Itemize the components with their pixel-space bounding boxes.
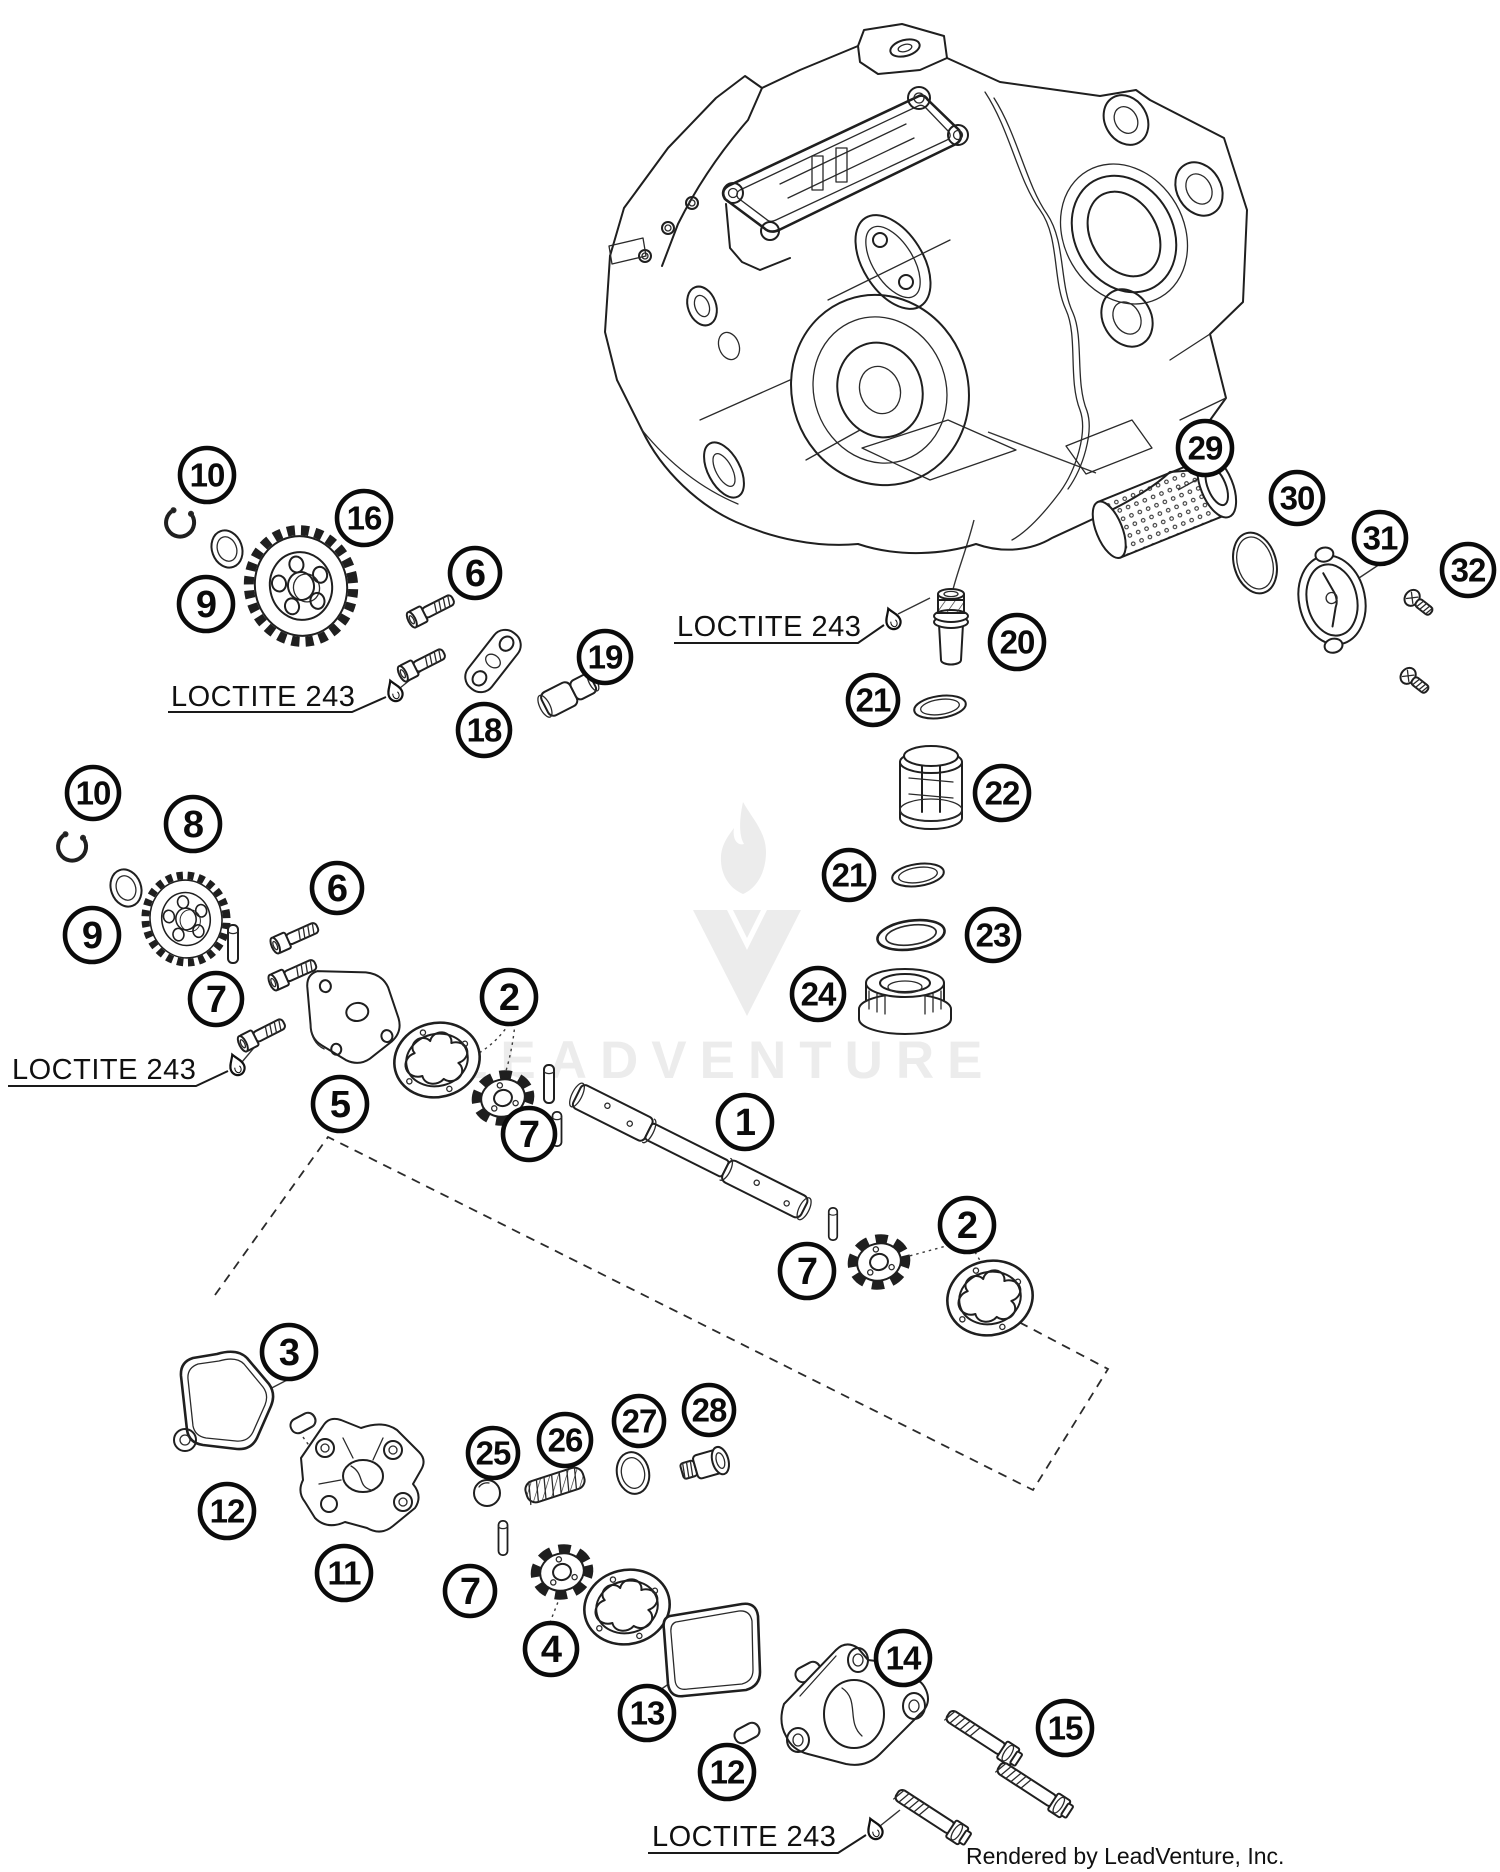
loctite-drop-icon (864, 1816, 885, 1841)
callout-3[interactable]: 3 (262, 1325, 316, 1379)
part-rotor-inner-4 (530, 1543, 594, 1601)
svg-text:25: 25 (476, 1435, 511, 1472)
part-plug-28 (678, 1445, 732, 1485)
callout-4[interactable]: 4 (525, 1623, 577, 1675)
svg-text:10: 10 (190, 457, 225, 494)
callout-21[interactable]: 21 (848, 675, 898, 725)
part-oring-30 (1226, 527, 1283, 598)
callout-16[interactable]: 16 (337, 491, 391, 545)
part-bolt-7-loctite (236, 1015, 288, 1053)
svg-text:16: 16 (347, 500, 382, 537)
part-gasket-13 (664, 1604, 760, 1697)
svg-text:28: 28 (692, 1392, 727, 1429)
svg-text:7: 7 (797, 1251, 817, 1293)
callout-11[interactable]: 11 (317, 1546, 371, 1600)
part-oring-21b (891, 860, 946, 889)
callout-6[interactable]: 6 (450, 548, 500, 598)
loctite-annotation: LOCTITE 243 (648, 1816, 885, 1853)
svg-text:20: 20 (1000, 624, 1035, 661)
loctite-annotation: LOCTITE 243 (674, 606, 903, 643)
loctite-label: LOCTITE 243 (12, 1054, 196, 1086)
loctite-annotation: LOCTITE 243 (168, 678, 405, 713)
part-spring-26 (523, 1465, 587, 1504)
callout-25[interactable]: 25 (468, 1428, 518, 1478)
svg-text:1: 1 (735, 1102, 756, 1144)
svg-text:2: 2 (957, 1205, 977, 1247)
svg-text:3: 3 (279, 1332, 299, 1374)
callout-21[interactable]: 21 (824, 850, 874, 900)
part-dowel-12b-2 (732, 1720, 762, 1745)
svg-text:31: 31 (1363, 520, 1398, 557)
loctite-label: LOCTITE 243 (171, 681, 355, 713)
parts-diagram-canvas: LEADVENTURE (0, 0, 1500, 1872)
part-rotor-outer-2a (386, 1014, 487, 1107)
svg-text:9: 9 (82, 915, 102, 957)
part-circlip-10a (162, 503, 198, 540)
callout-6[interactable]: 6 (312, 863, 362, 913)
svg-text:4: 4 (541, 1629, 562, 1671)
callout-15[interactable]: 15 (1038, 1701, 1092, 1755)
callout-12[interactable]: 12 (200, 1484, 254, 1538)
callout-5[interactable]: 5 (313, 1077, 367, 1131)
loctite-annotation: LOCTITE 243 (8, 1052, 247, 1086)
part-bolt-6b-1 (269, 919, 321, 955)
part-bolt-15a (943, 1706, 1024, 1769)
svg-text:14: 14 (886, 1640, 922, 1677)
callout-30[interactable]: 30 (1271, 472, 1323, 524)
part-pin-7d (499, 1521, 508, 1555)
callout-9[interactable]: 9 (65, 908, 119, 962)
part-plate-18 (460, 624, 527, 698)
callout-7[interactable]: 7 (190, 973, 242, 1025)
callout-10[interactable]: 10 (180, 448, 234, 502)
part-pin-7c (829, 1208, 838, 1240)
callout-27[interactable]: 27 (614, 1396, 664, 1446)
callout-19[interactable]: 19 (579, 631, 631, 683)
callout-13[interactable]: 13 (620, 1686, 674, 1740)
callout-32[interactable]: 32 (1442, 544, 1494, 596)
part-nozzle-20 (934, 589, 968, 665)
svg-text:32: 32 (1451, 552, 1486, 589)
svg-text:8: 8 (183, 804, 203, 846)
svg-text:13: 13 (630, 1695, 665, 1732)
part-pin-7b (544, 1065, 554, 1103)
callout-2[interactable]: 2 (482, 970, 536, 1024)
part-oring-21a (913, 692, 968, 721)
part-bolt-6a (405, 591, 457, 629)
callout-8[interactable]: 8 (166, 797, 220, 851)
render-credit: Rendered by LeadVenture, Inc. (966, 1843, 1284, 1869)
svg-text:7: 7 (460, 1571, 480, 1613)
svg-text:7: 7 (206, 979, 226, 1021)
svg-text:6: 6 (327, 868, 347, 910)
part-rotor-inner-2b (847, 1233, 911, 1291)
callout-28[interactable]: 28 (684, 1385, 734, 1435)
callout-7[interactable]: 7 (503, 1108, 555, 1160)
callout-2[interactable]: 2 (940, 1198, 994, 1252)
loctite-drop-icon (882, 606, 903, 631)
callout-14[interactable]: 14 (876, 1631, 930, 1685)
callout-20[interactable]: 20 (990, 615, 1044, 669)
svg-text:12: 12 (210, 1493, 245, 1530)
part-oring-27 (613, 1449, 653, 1497)
callout-7[interactable]: 7 (780, 1244, 834, 1298)
svg-text:23: 23 (976, 917, 1011, 954)
svg-text:11: 11 (328, 1555, 362, 1592)
svg-text:7: 7 (519, 1114, 539, 1156)
part-screw-32a (1401, 587, 1436, 619)
svg-text:10: 10 (76, 775, 111, 812)
part-shim-9b (105, 865, 146, 911)
svg-text:18: 18 (467, 712, 502, 749)
part-shaft-1 (567, 1081, 815, 1222)
callout-12[interactable]: 12 (700, 1745, 754, 1799)
part-oring-23 (876, 916, 947, 954)
callout-10[interactable]: 10 (67, 767, 119, 819)
callout-7[interactable]: 7 (445, 1566, 495, 1616)
callout-23[interactable]: 23 (967, 909, 1019, 961)
leadventure-flame-icon (721, 802, 766, 894)
leadventure-v-icon (693, 910, 801, 1016)
loctite-drop-icon (384, 678, 405, 703)
callout-31[interactable]: 31 (1354, 512, 1406, 564)
callout-1[interactable]: 1 (718, 1095, 772, 1149)
svg-text:12: 12 (710, 1754, 745, 1791)
svg-text:24: 24 (801, 976, 837, 1013)
loctite-annotations: LOCTITE 243LOCTITE 243LOCTITE 243LOCTITE… (8, 606, 903, 1853)
loctite-label: LOCTITE 243 (652, 1821, 836, 1853)
svg-text:22: 22 (985, 775, 1020, 812)
callout-22[interactable]: 22 (975, 766, 1029, 820)
part-pin-7a (228, 925, 238, 963)
callout-29[interactable]: 29 (1178, 421, 1232, 475)
part-pump-housing-11 (300, 1419, 423, 1532)
loctite-label: LOCTITE 243 (677, 611, 861, 643)
part-screw-32b (1397, 665, 1432, 697)
part-ball-25 (474, 1480, 500, 1506)
svg-text:30: 30 (1280, 480, 1315, 517)
part-strainer-22 (900, 746, 962, 829)
part-dowel-12a (288, 1410, 318, 1435)
svg-text:6: 6 (465, 553, 485, 595)
svg-text:26: 26 (548, 1422, 583, 1459)
svg-text:27: 27 (622, 1403, 657, 1440)
watermark-text: LEADVENTURE (455, 1031, 996, 1090)
part-circlip-10b (54, 827, 90, 864)
svg-text:21: 21 (856, 682, 891, 719)
part-sprocket-8 (138, 869, 233, 969)
svg-text:15: 15 (1048, 1710, 1083, 1747)
svg-text:5: 5 (330, 1084, 351, 1126)
svg-text:29: 29 (1188, 430, 1223, 467)
svg-text:2: 2 (499, 977, 519, 1019)
svg-text:21: 21 (832, 857, 867, 894)
watermark: LEADVENTURE (455, 802, 996, 1090)
part-bolt-15-loctite (892, 1785, 973, 1848)
part-gasket-3 (174, 1352, 273, 1451)
part-shim-9a (206, 526, 247, 572)
callout-9[interactable]: 9 (179, 577, 233, 631)
part-rotor-outer-2b (939, 1252, 1040, 1345)
part-bolt-6a-loctite (396, 645, 448, 683)
loctite-drop-icon (226, 1052, 247, 1077)
callout-24[interactable]: 24 (792, 968, 844, 1020)
part-bolt-15b (994, 1758, 1075, 1821)
svg-text:19: 19 (588, 639, 623, 676)
svg-text:9: 9 (196, 584, 216, 626)
callout-18[interactable]: 18 (458, 704, 510, 756)
engine-crankcase-drawing (605, 24, 1247, 553)
part-bushing-24 (859, 969, 951, 1034)
part-cover-5 (303, 961, 404, 1069)
callout-26[interactable]: 26 (539, 1414, 591, 1466)
